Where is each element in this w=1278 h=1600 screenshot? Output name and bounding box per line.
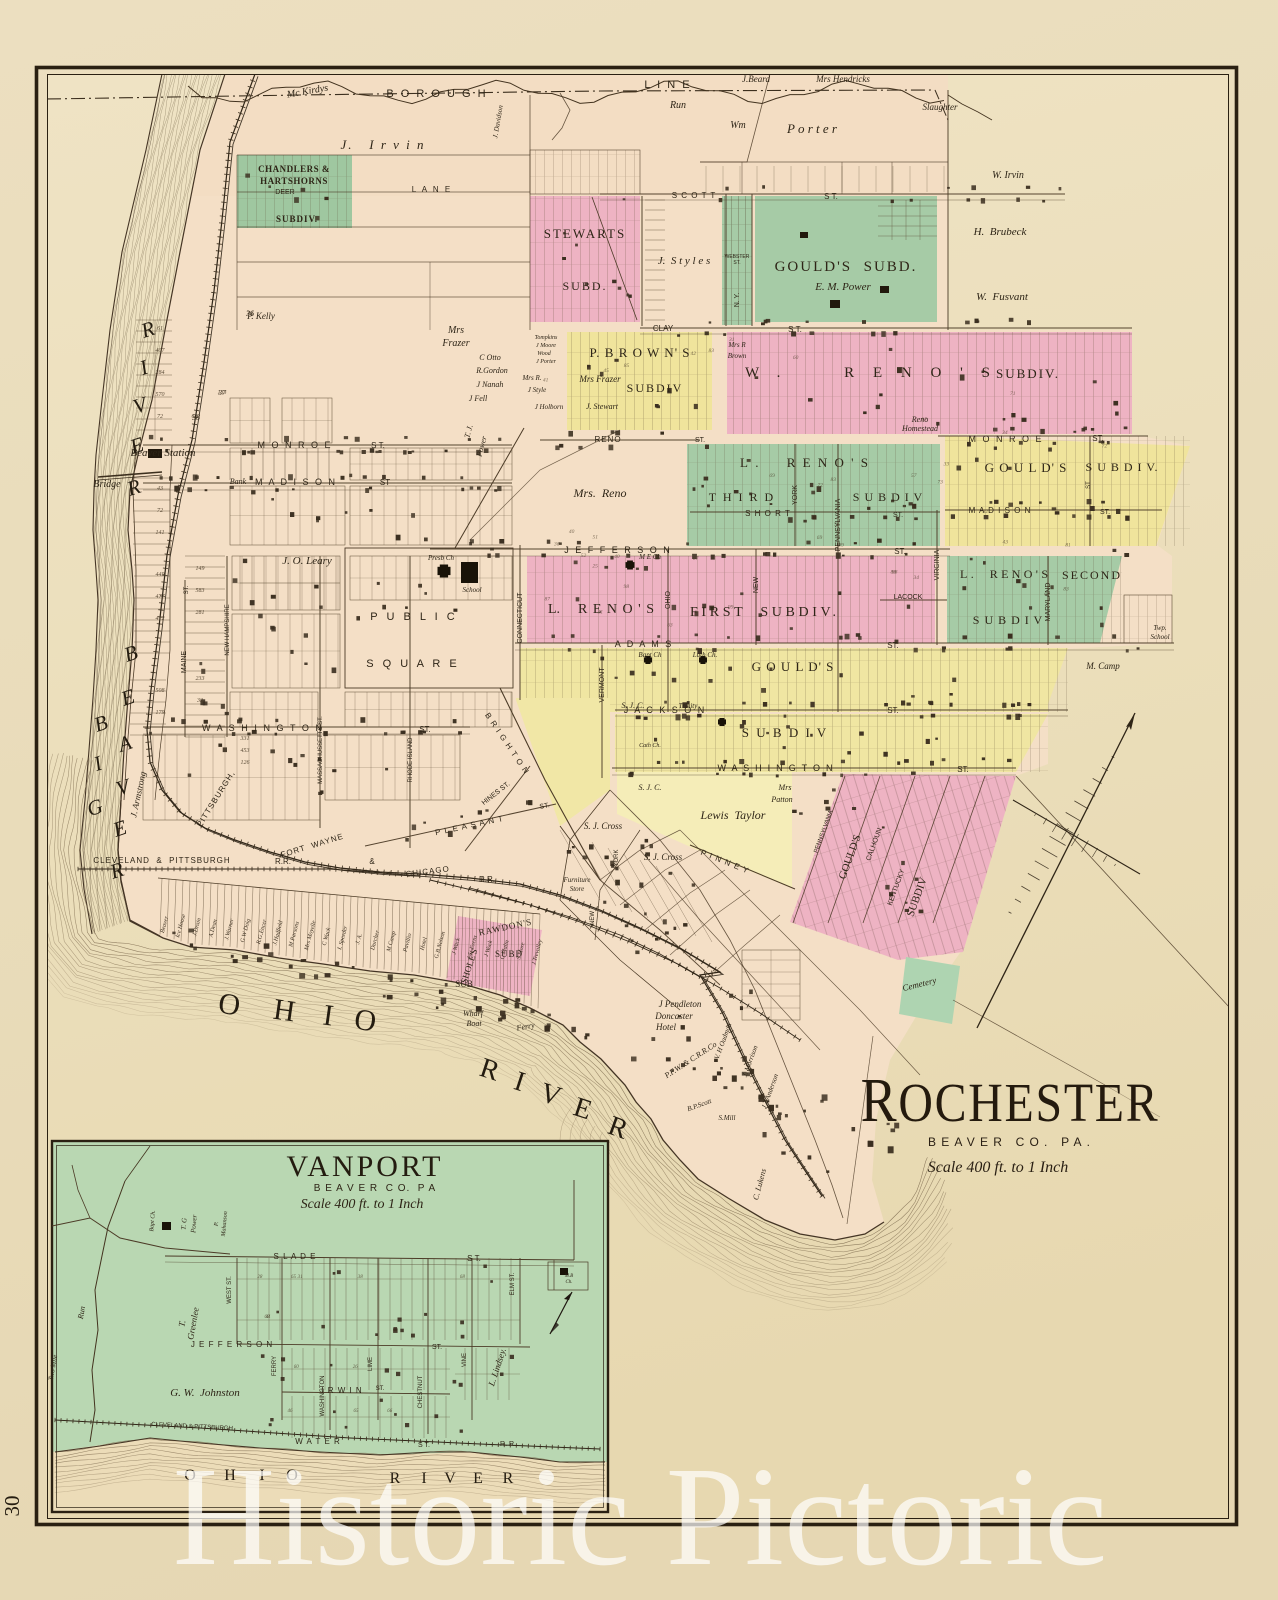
svg-text:81: 81 bbox=[597, 609, 603, 615]
svg-text:40: 40 bbox=[569, 528, 575, 535]
svg-text:38: 38 bbox=[358, 1275, 364, 1280]
svg-text:Bapt Ch: Bapt Ch bbox=[638, 651, 662, 659]
svg-text:FERRY: FERRY bbox=[272, 1356, 278, 1376]
svg-text:Mrs R.: Mrs R. bbox=[521, 374, 541, 382]
svg-text:&: & bbox=[369, 857, 375, 866]
svg-text:331: 331 bbox=[240, 736, 250, 742]
svg-text:R.Gordon: R.Gordon bbox=[475, 366, 507, 375]
svg-text:42: 42 bbox=[690, 350, 696, 357]
svg-text:83: 83 bbox=[830, 477, 836, 483]
svg-text:W. Fusvant: W. Fusvant bbox=[976, 291, 1029, 303]
svg-text:Patton: Patton bbox=[770, 795, 792, 804]
svg-text:S C O T T: S C O T T bbox=[672, 191, 717, 200]
svg-text:E. M. Power: E. M. Power bbox=[814, 281, 871, 293]
svg-text:J Fell: J Fell bbox=[469, 394, 488, 403]
svg-text:72: 72 bbox=[157, 508, 163, 514]
svg-text:O: O bbox=[352, 1003, 378, 1039]
svg-text:Slaughter: Slaughter bbox=[923, 102, 958, 112]
svg-text:SUBDIV.: SUBDIV. bbox=[276, 214, 318, 224]
svg-text:GOULD'S SUBD.: GOULD'S SUBD. bbox=[775, 259, 918, 275]
svg-text:I R W I N: I R W I N bbox=[321, 1386, 362, 1395]
svg-text:Lewis Taylor: Lewis Taylor bbox=[700, 808, 766, 822]
svg-text:284: 284 bbox=[156, 369, 165, 376]
svg-text:ST.: ST. bbox=[419, 725, 431, 734]
svg-text:30: 30 bbox=[0, 1496, 24, 1517]
svg-text:45: 45 bbox=[603, 367, 609, 374]
svg-text:407: 407 bbox=[156, 347, 166, 354]
svg-text:Hotel: Hotel bbox=[655, 1022, 676, 1032]
svg-text:MARYLAND: MARYLAND bbox=[1045, 583, 1052, 622]
svg-text:S T.: S T. bbox=[371, 441, 385, 450]
svg-text:ELM ST.: ELM ST. bbox=[510, 1272, 516, 1295]
svg-text:34: 34 bbox=[1001, 429, 1008, 436]
svg-text:RHODE ISLAND: RHODE ISLAND bbox=[408, 737, 414, 783]
svg-text:T H I R D: T H I R D bbox=[709, 490, 775, 504]
svg-text:P. B R O W N' S: P. B R O W N' S bbox=[589, 345, 690, 360]
svg-text:A D A M S: A D A M S bbox=[615, 639, 674, 649]
svg-text:B E A V E R C O. P A: B E A V E R C O. P A bbox=[314, 1183, 436, 1194]
svg-text:ST: ST bbox=[1086, 481, 1092, 489]
svg-text:J Holborn: J Holborn bbox=[535, 403, 564, 411]
svg-text:LACOCK: LACOCK bbox=[894, 594, 923, 601]
svg-text:L A N E: L A N E bbox=[412, 185, 452, 194]
svg-text:ROCHESTER: ROCHESTER bbox=[861, 1066, 1160, 1135]
svg-text:Furniture: Furniture bbox=[563, 876, 591, 884]
svg-text:P o r t e r: P o r t e r bbox=[786, 121, 838, 136]
svg-text:Power: Power bbox=[189, 1214, 199, 1234]
svg-text:65: 65 bbox=[291, 1275, 297, 1280]
svg-text:570: 570 bbox=[156, 392, 165, 398]
svg-text:NEW: NEW bbox=[753, 576, 760, 593]
svg-text:M. Camp: M. Camp bbox=[1085, 661, 1120, 671]
svg-text:52: 52 bbox=[581, 553, 587, 559]
svg-text:S T.: S T. bbox=[788, 325, 802, 334]
svg-text:J.Beard: J.Beard bbox=[742, 74, 770, 84]
svg-text:46: 46 bbox=[288, 1409, 294, 1414]
svg-text:S L A D E: S L A D E bbox=[274, 1252, 317, 1261]
svg-text:S. J. C.: S. J. C. bbox=[622, 701, 645, 710]
svg-text:61: 61 bbox=[157, 326, 163, 332]
svg-text:NEW: NEW bbox=[590, 911, 596, 925]
svg-text:ST.: ST. bbox=[887, 706, 899, 715]
svg-text:Mrs Frazer: Mrs Frazer bbox=[578, 374, 621, 384]
svg-text:Mrs: Mrs bbox=[447, 325, 464, 336]
svg-text:ST.: ST. bbox=[1100, 509, 1110, 516]
svg-text:ST.: ST. bbox=[733, 260, 740, 266]
svg-text:Twp.: Twp. bbox=[1153, 624, 1167, 632]
svg-text:41: 41 bbox=[543, 377, 549, 384]
svg-text:ST.: ST. bbox=[432, 1344, 442, 1351]
svg-text:SUBDIV.: SUBDIV. bbox=[996, 366, 1060, 381]
svg-text:W. Irvin: W. Irvin bbox=[992, 170, 1024, 181]
svg-text:Tompkins: Tompkins bbox=[535, 335, 558, 341]
svg-text:P U B L I C: P U B L I C bbox=[370, 611, 457, 623]
svg-text:72: 72 bbox=[1102, 443, 1108, 449]
svg-text:25: 25 bbox=[592, 564, 598, 570]
svg-text:Wharf: Wharf bbox=[463, 1009, 485, 1018]
svg-text:S H O R T: S H O R T bbox=[745, 509, 791, 518]
svg-text:87: 87 bbox=[544, 597, 550, 603]
svg-text:M A D I S O N: M A D I S O N bbox=[255, 477, 337, 487]
svg-text:57: 57 bbox=[911, 473, 917, 479]
svg-text:M E Ch: M E Ch bbox=[638, 553, 661, 561]
svg-text:S U B D I V.: S U B D I V. bbox=[1086, 460, 1159, 474]
svg-text:J Pendleton: J Pendleton bbox=[659, 999, 702, 1009]
svg-text:H. Brubeck: H. Brubeck bbox=[973, 226, 1028, 238]
svg-text:G O U L D' S: G O U L D' S bbox=[752, 659, 835, 674]
svg-text:Bridge: Bridge bbox=[93, 479, 121, 490]
svg-text:OHIO: OHIO bbox=[665, 591, 672, 609]
svg-text:99: 99 bbox=[728, 604, 734, 610]
svg-text:98: 98 bbox=[623, 584, 629, 590]
svg-text:412: 412 bbox=[156, 615, 165, 622]
svg-text:60: 60 bbox=[793, 355, 799, 361]
svg-text:Presb Ch: Presb Ch bbox=[427, 554, 454, 562]
svg-text:J. O. Leary: J. O. Leary bbox=[282, 555, 332, 567]
svg-text:Run: Run bbox=[669, 100, 686, 111]
svg-text:ST.: ST. bbox=[376, 1386, 385, 1392]
svg-text:YORK: YORK bbox=[792, 485, 799, 505]
svg-text:83: 83 bbox=[709, 348, 715, 354]
svg-text:43: 43 bbox=[1003, 539, 1009, 546]
svg-text:133: 133 bbox=[218, 390, 227, 396]
svg-text:126: 126 bbox=[241, 760, 250, 766]
svg-text:Store: Store bbox=[570, 885, 585, 893]
svg-text:73: 73 bbox=[937, 480, 943, 486]
svg-text:ST.: ST. bbox=[695, 437, 705, 444]
svg-text:Ch.: Ch. bbox=[565, 1280, 572, 1285]
svg-text:65: 65 bbox=[354, 1409, 360, 1414]
svg-text:40: 40 bbox=[614, 553, 620, 560]
svg-text:M A D I S O N: M A D I S O N bbox=[969, 506, 1032, 515]
svg-text:92: 92 bbox=[982, 509, 988, 515]
svg-text:Wood: Wood bbox=[537, 351, 551, 357]
svg-text:CLAY: CLAY bbox=[653, 324, 674, 333]
svg-text:S. J. C.: S. J. C. bbox=[639, 783, 662, 792]
svg-text:98: 98 bbox=[892, 570, 898, 576]
svg-text:60: 60 bbox=[294, 1365, 300, 1370]
svg-text:Trinity: Trinity bbox=[679, 702, 699, 710]
svg-text:33: 33 bbox=[943, 462, 950, 468]
svg-text:43: 43 bbox=[157, 485, 163, 492]
svg-text:26: 26 bbox=[353, 1365, 359, 1370]
svg-text:S. J. Cross: S. J. Cross bbox=[644, 852, 683, 862]
svg-text:J. Stewart: J. Stewart bbox=[586, 402, 619, 411]
svg-text:WEST ST.: WEST ST. bbox=[227, 1276, 233, 1304]
svg-text:ST.: ST. bbox=[1092, 434, 1104, 443]
svg-text:85: 85 bbox=[624, 363, 630, 369]
svg-text:81: 81 bbox=[1065, 543, 1071, 549]
svg-text:Mrs. Reno: Mrs. Reno bbox=[573, 486, 627, 500]
svg-text:Homestead: Homestead bbox=[901, 424, 939, 433]
svg-text:477: 477 bbox=[156, 593, 166, 600]
svg-text:179: 179 bbox=[156, 710, 165, 716]
svg-text:C Otto: C Otto bbox=[479, 353, 501, 362]
svg-text:S T.: S T. bbox=[824, 192, 838, 201]
svg-text:149: 149 bbox=[196, 565, 205, 572]
svg-text:S U B D I V: S U B D I V bbox=[853, 490, 923, 504]
svg-text:M.B: M.B bbox=[564, 1274, 573, 1279]
svg-text:G O U L D' S: G O U L D' S bbox=[985, 460, 1068, 475]
svg-text:CHANDLERS &: CHANDLERS & bbox=[258, 164, 330, 174]
svg-text:Brown: Brown bbox=[728, 352, 747, 360]
svg-text:453: 453 bbox=[241, 747, 250, 754]
svg-text:VINE: VINE bbox=[462, 1353, 468, 1367]
svg-text:Scale 400 ft. to 1 Inch: Scale 400 ft. to 1 Inch bbox=[928, 1159, 1068, 1176]
svg-text:T. G: T. G bbox=[180, 1218, 189, 1231]
svg-text:Historic Pictoric: Historic Pictoric bbox=[173, 1437, 1108, 1595]
svg-text:68: 68 bbox=[460, 1275, 466, 1280]
svg-text:631: 631 bbox=[192, 414, 201, 420]
svg-text:32: 32 bbox=[196, 698, 203, 704]
svg-text:J Porter: J Porter bbox=[536, 359, 556, 365]
svg-text:Wm: Wm bbox=[730, 120, 746, 131]
svg-text:YORK: YORK bbox=[614, 849, 620, 866]
svg-text:36: 36 bbox=[553, 541, 560, 547]
svg-text:G. W. Johnston: G. W. Johnston bbox=[170, 1387, 240, 1399]
svg-text:99: 99 bbox=[838, 543, 844, 549]
svg-text:DEER: DEER bbox=[275, 189, 294, 196]
svg-text:SUBDIV: SUBDIV bbox=[627, 381, 684, 395]
svg-text:VERMONT: VERMONT bbox=[599, 667, 606, 703]
svg-text:L I N E: L I N E bbox=[644, 79, 691, 91]
svg-text:72: 72 bbox=[157, 414, 163, 420]
svg-text:83: 83 bbox=[1063, 587, 1069, 593]
svg-text:School: School bbox=[1150, 633, 1169, 641]
svg-text:ST.: ST. bbox=[893, 512, 903, 519]
svg-text:34: 34 bbox=[913, 574, 920, 581]
svg-text:CHESTNUT: CHESTNUT bbox=[418, 1375, 424, 1408]
svg-text:P.: P. bbox=[214, 1221, 220, 1227]
svg-text:Doncaster: Doncaster bbox=[654, 1011, 693, 1021]
svg-text:ST: ST bbox=[380, 478, 390, 487]
svg-text:69: 69 bbox=[817, 535, 823, 541]
svg-text:28: 28 bbox=[257, 1275, 263, 1280]
svg-text:R.R.: R.R. bbox=[275, 857, 291, 866]
svg-text:B O R O U G H: B O R O U G H bbox=[386, 88, 487, 100]
svg-text:97: 97 bbox=[921, 417, 927, 423]
svg-text:LIME: LIME bbox=[368, 1357, 374, 1371]
svg-text:FIRST SUBDIV.: FIRST SUBDIV. bbox=[690, 605, 836, 620]
svg-text:SECOND: SECOND bbox=[1062, 568, 1120, 582]
svg-text:71: 71 bbox=[1010, 391, 1016, 397]
svg-text:51: 51 bbox=[592, 535, 598, 541]
svg-text:RENO: RENO bbox=[594, 435, 621, 444]
svg-text:Frazer: Frazer bbox=[441, 338, 469, 349]
svg-text:NEW HAMPSHIRE: NEW HAMPSHIRE bbox=[225, 604, 231, 655]
svg-text:M O N R O E: M O N R O E bbox=[257, 440, 332, 450]
svg-text:66: 66 bbox=[387, 1409, 393, 1414]
svg-text:S. J. Cross: S. J. Cross bbox=[584, 821, 623, 831]
svg-text:School: School bbox=[462, 586, 481, 594]
svg-text:72: 72 bbox=[247, 311, 253, 317]
svg-text:508: 508 bbox=[156, 688, 165, 694]
svg-text:281: 281 bbox=[196, 610, 205, 616]
svg-text:66: 66 bbox=[1044, 592, 1050, 598]
svg-text:Bank: Bank bbox=[230, 477, 247, 486]
svg-text:233: 233 bbox=[196, 676, 205, 682]
svg-text:N. Y.: N. Y. bbox=[734, 293, 741, 308]
svg-text:Boat: Boat bbox=[466, 1019, 482, 1028]
svg-text:Cath Ch.: Cath Ch. bbox=[639, 743, 661, 749]
svg-text:31: 31 bbox=[298, 1275, 303, 1280]
svg-text:Mrs: Mrs bbox=[778, 783, 792, 792]
svg-text:L.: L. bbox=[548, 602, 560, 617]
svg-text:VIRGINIA: VIRGINIA bbox=[934, 549, 941, 580]
svg-text:R.R.: R.R. bbox=[479, 875, 495, 884]
svg-text:Scale 400 ft. to 1 Inch: Scale 400 ft. to 1 Inch bbox=[301, 1197, 424, 1212]
svg-text:ST.: ST. bbox=[894, 547, 906, 556]
svg-text:STEWARTS: STEWARTS bbox=[544, 226, 626, 241]
svg-text:J E F F E R S O N: J E F F E R S O N bbox=[191, 1340, 273, 1349]
svg-text:72: 72 bbox=[817, 482, 823, 488]
svg-text:449: 449 bbox=[156, 571, 165, 578]
svg-text:141: 141 bbox=[156, 529, 165, 536]
svg-text:S Q U A R E: S Q U A R E bbox=[366, 658, 460, 670]
svg-text:SUB: SUB bbox=[455, 979, 473, 989]
svg-text:583: 583 bbox=[196, 588, 205, 594]
svg-text:O: O bbox=[216, 987, 242, 1023]
svg-text:J Style: J Style bbox=[528, 386, 546, 394]
svg-text:WASHINGTON: WASHINGTON bbox=[320, 1375, 326, 1416]
svg-text:J Moore: J Moore bbox=[536, 343, 556, 349]
svg-text:J Nanah: J Nanah bbox=[477, 380, 504, 389]
svg-text:ST.: ST. bbox=[184, 585, 190, 594]
svg-text:MAINE: MAINE bbox=[181, 651, 188, 674]
svg-text:HARTSHORNS: HARTSHORNS bbox=[260, 176, 328, 186]
svg-text:SUBD.: SUBD. bbox=[562, 279, 607, 293]
svg-text:ST.: ST. bbox=[957, 765, 969, 774]
svg-text:56: 56 bbox=[834, 521, 840, 527]
svg-text:31: 31 bbox=[728, 337, 735, 343]
svg-text:63: 63 bbox=[667, 623, 673, 629]
svg-text:VANPORT: VANPORT bbox=[286, 1150, 443, 1183]
svg-text:S U B D I V: S U B D I V bbox=[973, 613, 1043, 627]
svg-text:S T.: S T. bbox=[467, 1254, 481, 1263]
svg-text:CONNECTICUT: CONNECTICUT bbox=[517, 592, 524, 644]
svg-text:Luth Ch.: Luth Ch. bbox=[692, 651, 718, 659]
svg-text:J. I r v i n: J. I r v i n bbox=[340, 137, 425, 152]
svg-text:41: 41 bbox=[266, 1315, 271, 1320]
svg-text:Mrs Hendricks: Mrs Hendricks bbox=[815, 74, 870, 84]
svg-text:69: 69 bbox=[769, 473, 775, 479]
svg-text:S U B D I V: S U B D I V bbox=[742, 725, 828, 740]
svg-text:J. S t y l e s: J. S t y l e s bbox=[658, 255, 711, 267]
svg-text:H: H bbox=[271, 993, 297, 1029]
svg-text:S.Mill: S.Mill bbox=[719, 1114, 736, 1122]
svg-text:ST.: ST. bbox=[887, 641, 899, 650]
svg-text:67: 67 bbox=[693, 556, 699, 562]
